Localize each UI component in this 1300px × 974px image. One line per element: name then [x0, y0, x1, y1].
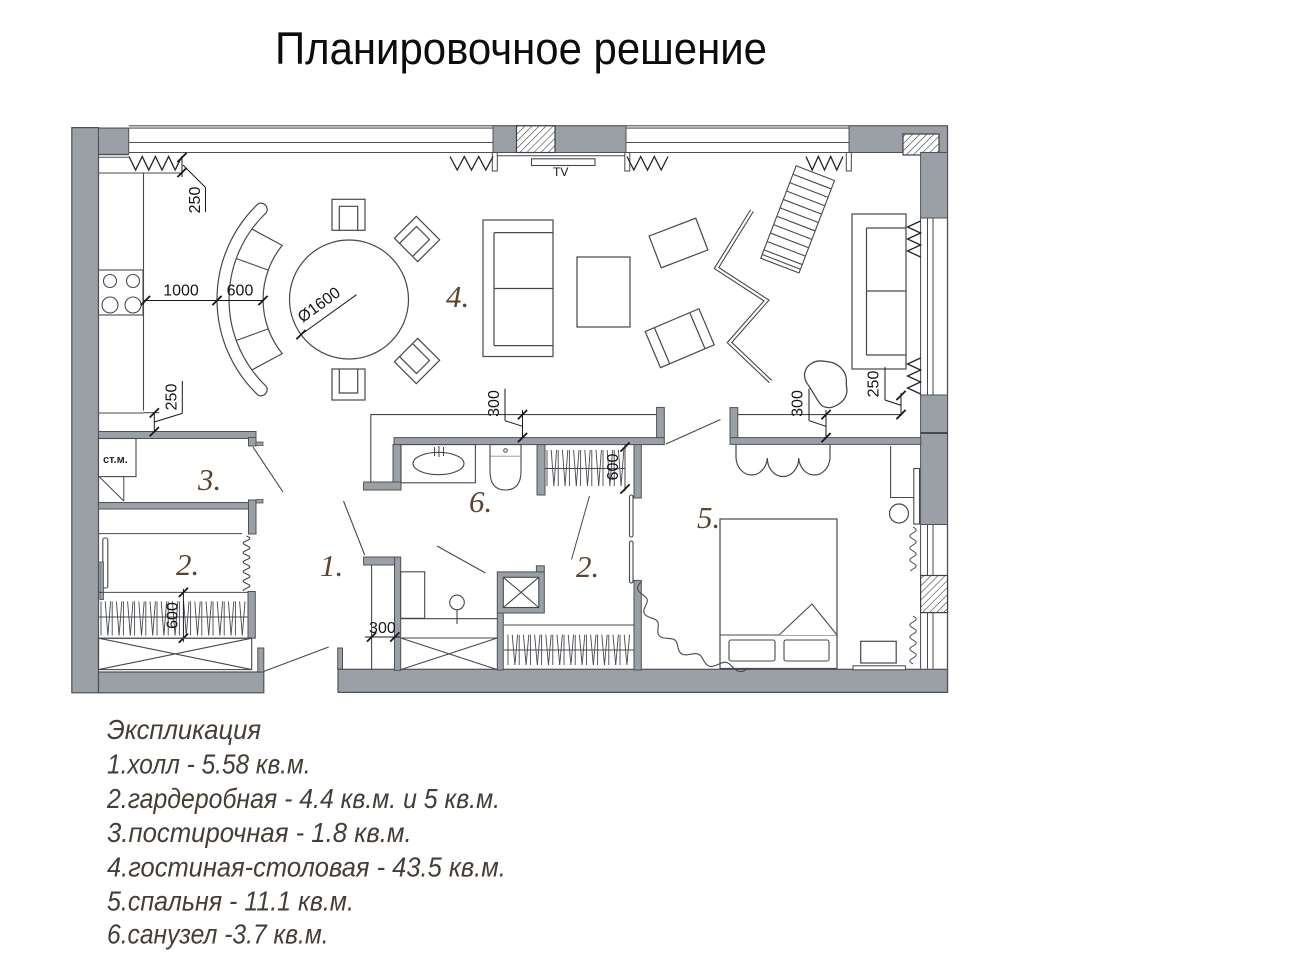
svg-text:600: 600 — [164, 602, 181, 629]
svg-text:300: 300 — [369, 620, 396, 637]
svg-text:6.: 6. — [469, 484, 492, 519]
svg-text:250: 250 — [164, 384, 181, 411]
svg-text:Экспликация: Экспликация — [107, 714, 261, 745]
svg-text:Планировочное решение: Планировочное решение — [275, 23, 767, 74]
svg-text:ст.м.: ст.м. — [103, 454, 128, 466]
svg-text:2.: 2. — [576, 549, 599, 584]
svg-text:1000: 1000 — [163, 283, 199, 300]
svg-text:4.гостиная-столовая - 43.5 кв.: 4.гостиная-столовая - 43.5 кв.м. — [107, 852, 506, 883]
svg-text:2.: 2. — [176, 547, 199, 582]
svg-text:250: 250 — [866, 371, 883, 398]
svg-text:4.: 4. — [446, 279, 469, 314]
svg-text:5.спальня - 11.1 кв.м.: 5.спальня - 11.1 кв.м. — [107, 886, 354, 917]
svg-text:2.гардеробная - 4.4 кв.м. и 5: 2.гардеробная - 4.4 кв.м. и 5 кв.м. — [106, 783, 500, 814]
svg-text:6.санузел -3.7 кв.м.: 6.санузел -3.7 кв.м. — [107, 919, 329, 950]
svg-text:250: 250 — [187, 187, 204, 214]
svg-text:300: 300 — [486, 390, 503, 417]
svg-text:TV: TV — [553, 165, 568, 179]
svg-text:600: 600 — [227, 283, 254, 300]
svg-text:1.холл - 5.58 кв.м.: 1.холл - 5.58 кв.м. — [107, 749, 311, 780]
svg-text:3.постирочная - 1.8 кв.м.: 3.постирочная - 1.8 кв.м. — [107, 817, 412, 848]
svg-text:3.: 3. — [197, 462, 221, 497]
svg-text:600: 600 — [605, 454, 622, 481]
svg-text:5.: 5. — [697, 500, 720, 535]
svg-text:1.: 1. — [320, 548, 343, 583]
svg-text:300: 300 — [790, 390, 807, 417]
